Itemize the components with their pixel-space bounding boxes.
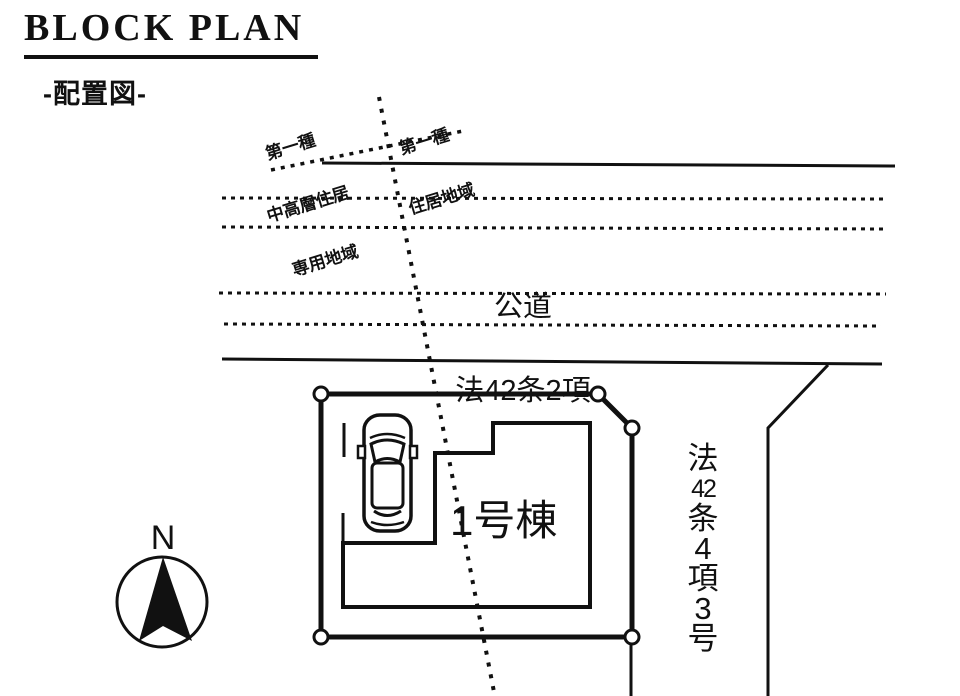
plot-corner-marker bbox=[314, 387, 328, 401]
road-label: 公道 法42条2項 bbox=[427, 237, 619, 461]
plot-corner-marker bbox=[625, 630, 639, 644]
vertical-label-char: 項 bbox=[688, 564, 719, 594]
zoning-district-label-line: 第一種 bbox=[231, 121, 350, 174]
plot-corner-marker bbox=[625, 421, 639, 435]
vertical-label-char: 4 bbox=[694, 534, 711, 564]
zoning-district-label-line: 専用地域 bbox=[266, 234, 385, 287]
road-law-reference: 法42条2項 bbox=[427, 377, 619, 405]
compass-north-arrow bbox=[139, 557, 192, 641]
compass-north-label: N bbox=[144, 519, 182, 558]
block-plan-diagram: BLOCK PLAN -配置図- 第一種 中高層住居 専用地域 第一種 住居地域… bbox=[0, 0, 960, 696]
car-icon bbox=[358, 415, 417, 531]
vertical-label-char: 号 bbox=[688, 624, 719, 654]
vertical-label-char: 3 bbox=[694, 594, 711, 624]
zoning-district-label-line: 中高層住居 bbox=[249, 178, 368, 231]
right-boundary-law-label: 法 42 条 4 項 3 号 bbox=[680, 444, 726, 654]
vertical-label-char: 42 bbox=[691, 474, 715, 504]
zoning-district-label-line: 第一種 bbox=[377, 120, 471, 166]
plot-corner-marker bbox=[314, 630, 328, 644]
road-name: 公道 bbox=[427, 293, 619, 321]
zoning-district-label-line: 住居地域 bbox=[395, 176, 489, 222]
vertical-label-char: 法 bbox=[688, 444, 719, 474]
building-number-label: 1号棟 bbox=[450, 499, 557, 543]
neighbor-boundary-line bbox=[768, 365, 828, 696]
page-title: BLOCK PLAN bbox=[24, 6, 318, 59]
vertical-label-char: 条 bbox=[688, 504, 719, 534]
page-subtitle: -配置図- bbox=[43, 72, 147, 111]
compass-icon bbox=[117, 557, 207, 647]
